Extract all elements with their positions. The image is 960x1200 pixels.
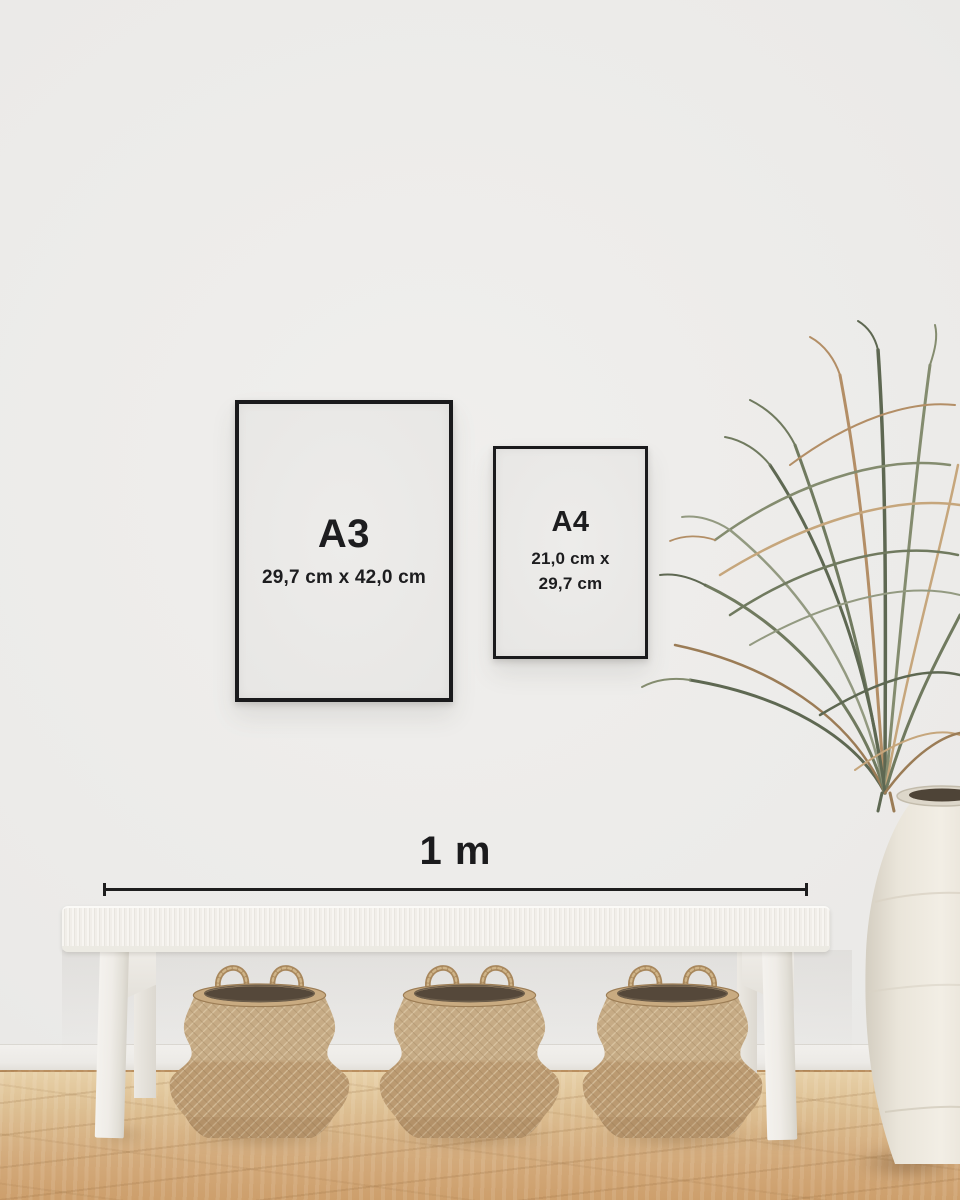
seagrass-basket-3 (578, 947, 767, 1155)
a4-size-label: A4 (551, 508, 589, 537)
bench-leg-front-left (95, 950, 129, 1139)
room-scene: A3 29,7 cm x 42,0 cm A4 21,0 cm x 29,7 c… (0, 0, 960, 1200)
dried-palm-plant (620, 315, 960, 815)
a4-dimensions-text: 21,0 cm x 29,7 cm (531, 547, 609, 596)
ceramic-vase (845, 782, 960, 1177)
bench-woven-top (62, 906, 830, 952)
scale-bar-line (103, 888, 808, 891)
a3-dimensions-text: 29,7 cm x 42,0 cm (262, 567, 426, 589)
a3-size-label: A3 (318, 514, 370, 554)
scale-bar: 1 m (103, 828, 808, 904)
scale-bar-label: 1 m (103, 828, 808, 874)
a3-frame: A3 29,7 cm x 42,0 cm (235, 400, 453, 702)
bench-leg-front-right (762, 950, 797, 1141)
scale-bar-tick-left (103, 883, 106, 896)
seagrass-basket-2 (375, 947, 564, 1155)
scale-bar-tick-right (805, 883, 808, 896)
seagrass-basket-1 (165, 947, 354, 1155)
